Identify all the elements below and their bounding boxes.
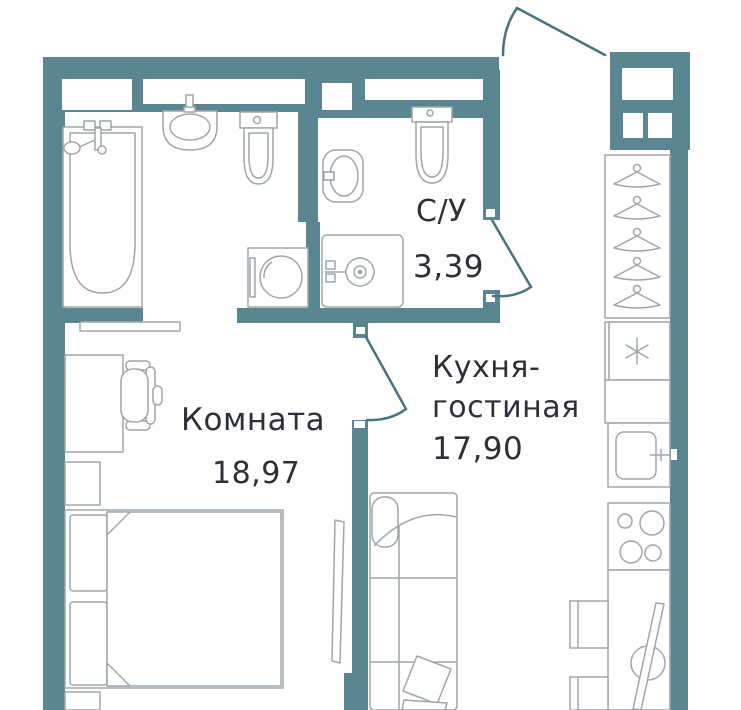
wall-right-outer — [670, 150, 688, 710]
entry-shaft-large — [622, 68, 673, 100]
wall-partition-foot — [344, 673, 368, 710]
double-bed — [65, 510, 283, 688]
washer-drum — [260, 256, 302, 298]
kitchen-door-jamb-top — [356, 327, 365, 334]
desk — [65, 355, 123, 452]
bed-pillow — [70, 515, 107, 591]
bathtub — [63, 121, 142, 307]
bed-pillow — [70, 602, 107, 685]
toilet-su — [412, 107, 452, 183]
burner — [618, 514, 632, 528]
entry-jamb-right — [602, 56, 610, 71]
entry-jamb-left — [499, 57, 506, 70]
su-door-swing — [492, 220, 531, 296]
bed-blanket — [107, 512, 281, 686]
tv — [332, 520, 344, 663]
niche-3 — [322, 83, 352, 110]
bathtub-shower-head — [64, 142, 80, 154]
wall-bath-bottom-right — [237, 308, 497, 323]
wall-partition-main — [352, 420, 368, 673]
burner — [640, 511, 664, 535]
entry-door-swing — [503, 8, 605, 55]
wardrobe-with-hangers — [605, 155, 670, 318]
wall-bath-bottom-left — [43, 308, 143, 323]
fridge — [605, 322, 670, 380]
entry-shaft-small-1 — [623, 113, 643, 138]
room-label-kitchen-line2: гостиная — [432, 393, 580, 423]
room-label-su: С/У — [416, 197, 467, 227]
room-label-komnata: Комната — [181, 405, 325, 436]
room-area-komnata: 18,97 — [212, 459, 300, 489]
shower-tray — [322, 235, 403, 307]
dining-chair — [570, 601, 608, 648]
oval-washbasin-su — [323, 150, 363, 202]
apartment-floorplan: Комната 18,97 С/У 3,39 Кухня- гостиная 1… — [0, 0, 741, 710]
sliding-door — [80, 322, 180, 331]
sofa — [370, 493, 457, 710]
niche-2 — [143, 79, 305, 104]
kitchen-sink — [608, 423, 670, 487]
dining-chair — [570, 677, 608, 710]
office-chair — [121, 361, 162, 430]
nightstand — [65, 692, 100, 710]
flush-button-su — [427, 110, 433, 116]
kitchen-door-jamb-bottom — [354, 421, 365, 428]
flush-button — [254, 117, 261, 124]
su-basin-faucet — [324, 172, 334, 180]
wall-divider-upper — [298, 100, 318, 222]
room-label-kitchen-line1: Кухня- — [432, 353, 540, 383]
entry-shaft-small-2 — [648, 113, 672, 138]
niche-4 — [365, 79, 483, 100]
stove-4-burners — [608, 503, 670, 570]
shower-valve-1 — [326, 261, 335, 269]
kitchen-counter-upper — [605, 380, 670, 423]
bathtub-drain — [98, 146, 106, 154]
su-door-jamb-top — [486, 209, 495, 217]
niche-1 — [62, 79, 132, 110]
burner — [620, 541, 642, 563]
room-area-kitchen: 17,90 — [432, 434, 523, 465]
toilet-bathroom — [240, 112, 277, 184]
right-wall-notch — [671, 449, 677, 460]
floorplan-drawing — [0, 0, 741, 710]
washing-machine — [248, 248, 308, 307]
room-area-su: 3,39 — [413, 252, 484, 283]
wall-su-right-upper — [483, 57, 500, 220]
burner — [645, 545, 661, 561]
nightstand — [65, 462, 100, 505]
shower-valve-2 — [326, 274, 335, 282]
wall-left-outer — [43, 57, 65, 710]
bathtub-tap-1 — [84, 121, 95, 130]
kitchen-door-swing — [366, 337, 406, 420]
sofa-armrest — [372, 497, 398, 547]
